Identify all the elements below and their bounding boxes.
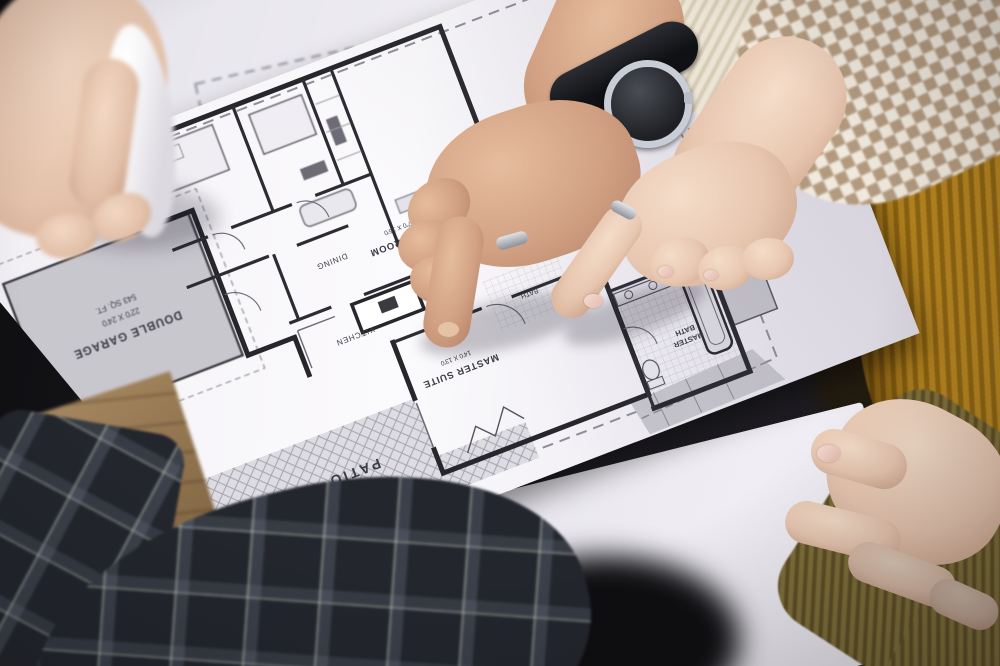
photo-scene: DOUBLE GARAGE 22'0 X 24'0 543 SQ. FT. GR… (0, 0, 1000, 666)
left-person-hand (0, 0, 260, 300)
